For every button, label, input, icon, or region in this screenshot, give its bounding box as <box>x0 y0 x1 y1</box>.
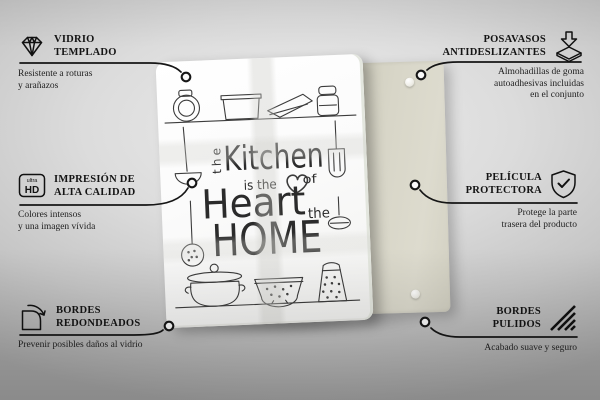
callout-print-quality: ultra HD IMPRESIÓN DE ALTA CALIDAD Color… <box>18 169 168 233</box>
callout-title-line2: ANTIDESLIZANTES <box>442 46 546 59</box>
ladle-illustration <box>173 127 201 185</box>
peeler-illustration <box>327 196 350 229</box>
kitchen-print-artwork: the Kitchen is the of Heart the HOME <box>156 54 374 328</box>
product-feature-diagram: the Kitchen is the of Heart the HOME <box>0 0 600 400</box>
grater-illustration <box>317 262 347 302</box>
callout-title-line1: BORDES <box>493 305 541 318</box>
design-word-home: HOME <box>211 212 323 268</box>
callout-subtitle-line2: autoadhesivas incluidas <box>408 79 584 91</box>
ultra-hd-icon-text-bottom: HD <box>25 185 39 196</box>
callout-polished-edges: BORDES PULIDOS Acabado suave y seguro <box>417 302 577 355</box>
coaster-pads-icon <box>554 30 584 62</box>
callout-rounded-edges: BORDES REDONDEADOS Prevenir posibles dañ… <box>18 301 188 352</box>
callout-title-line1: VIDRIO <box>54 33 117 46</box>
ultra-hd-icon: ultra HD <box>18 173 46 198</box>
callout-subtitle-line2: trasera del producto <box>407 220 577 232</box>
pot-illustration <box>221 94 262 120</box>
callout-title-line1: BORDES <box>56 304 140 317</box>
scoop-illustration <box>267 94 313 118</box>
callout-subtitle-line2: y arañazos <box>18 81 168 93</box>
ultra-hd-icon-text-top: ultra <box>27 178 39 184</box>
callout-subtitle-line2: y una imagen vívida <box>18 222 168 234</box>
callout-tempered-glass: VIDRIO TEMPLADO Resistente a roturas y a… <box>18 30 168 92</box>
diamond-icon <box>18 34 46 58</box>
callout-title-line2: PULIDOS <box>493 318 541 331</box>
lidded-pot-illustration <box>184 263 245 307</box>
callout-title-line2: TEMPLADO <box>54 46 117 59</box>
rounded-corner-icon <box>18 302 48 331</box>
glass-board: the Kitchen is the of Heart the HOME <box>156 54 374 328</box>
design-word-the-vertical: the <box>209 148 224 175</box>
callout-title-line1: IMPRESIÓN DE <box>54 173 135 186</box>
callout-subtitle-line1: Protege la parte <box>407 208 577 220</box>
rubber-pad <box>411 289 420 298</box>
callout-subtitle-line1: Acabado suave y seguro <box>417 343 577 355</box>
jar-illustration <box>173 90 200 122</box>
callout-subtitle-line1: Almohadillas de goma <box>408 67 584 79</box>
skimmer-illustration <box>179 201 204 267</box>
callout-subtitle-line3: en el conjunto <box>408 90 584 102</box>
callout-title-line2: PROTECTORA <box>466 184 542 197</box>
turner-illustration <box>327 121 345 178</box>
callout-subtitle-line1: Colores intensos <box>18 210 168 222</box>
jar2-illustration <box>317 86 339 116</box>
callout-protective-film: PELÍCULA PROTECTORA Protege la parte tra… <box>407 167 577 231</box>
callout-anti-slip-coasters: POSAVASOS ANTIDESLIZANTES Almohadillas d… <box>408 29 584 102</box>
callout-title-line2: REDONDEADOS <box>56 317 140 330</box>
polished-edge-icon <box>549 304 577 332</box>
callout-subtitle-line1: Prevenir posibles daños al vidrio <box>18 340 188 352</box>
callout-title-line1: PELÍCULA <box>466 171 542 184</box>
callout-subtitle-line1: Resistente a roturas <box>18 69 168 81</box>
shield-check-icon <box>550 169 577 199</box>
callout-title-line2: ALTA CALIDAD <box>54 186 135 199</box>
callout-title-line1: POSAVASOS <box>442 33 546 46</box>
